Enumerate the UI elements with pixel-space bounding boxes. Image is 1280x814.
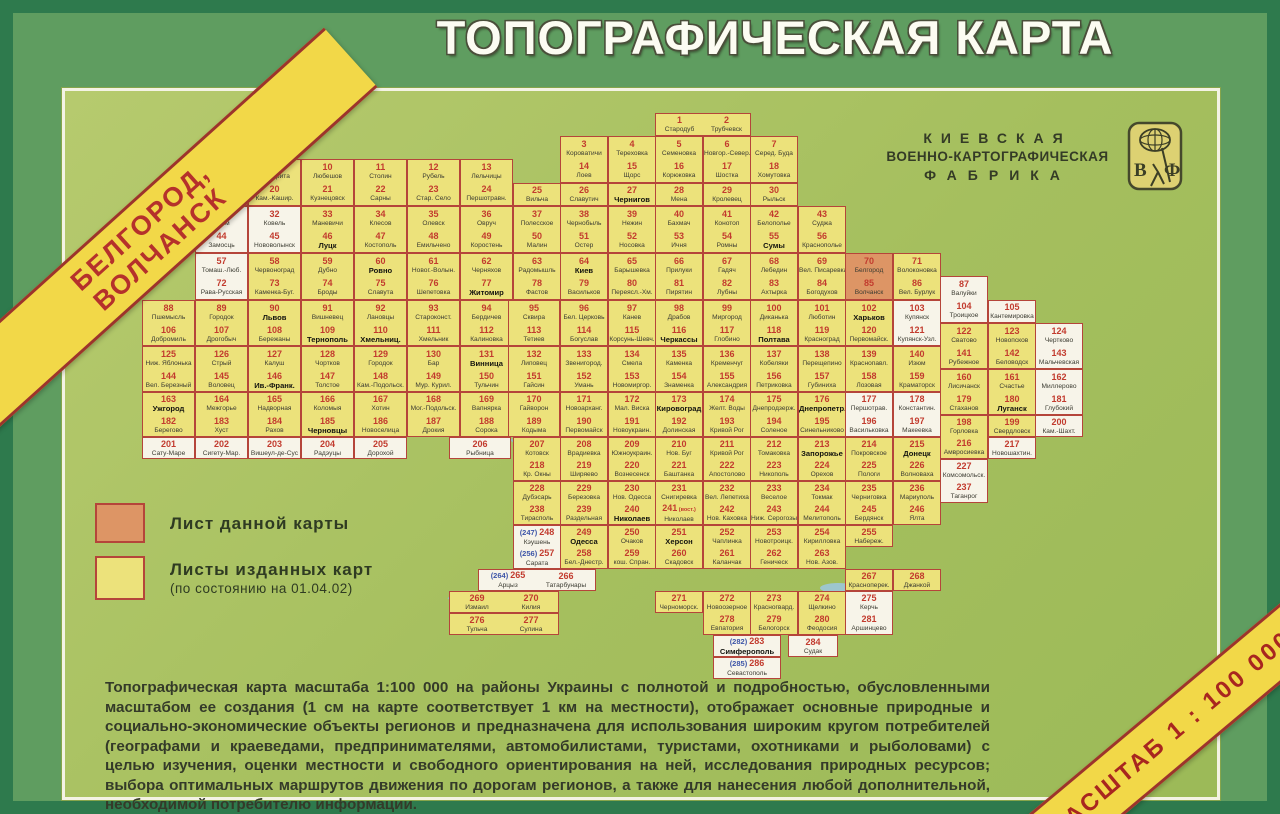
svg-text:Ф: Ф <box>1164 160 1180 181</box>
page-title: ТОПОГРАФИЧЕСКАЯ КАРТА <box>330 10 1220 65</box>
publisher-line1: КИЕВСКАЯ <box>880 130 1115 146</box>
legend-label-published-sheets: Листы изданных карт <box>170 560 373 580</box>
publisher-block: КИЕВСКАЯ ВОЕННО-КАРТОГРАФИЧЕСКАЯ ФАБРИКА <box>880 130 1115 183</box>
publisher-line2: ВОЕННО-КАРТОГРАФИЧЕСКАЯ <box>880 149 1115 164</box>
svg-text:В: В <box>1134 160 1147 181</box>
map-cover: { "title": "ТОПОГРАФИЧЕСКАЯ КАРТА", "rib… <box>0 0 1280 814</box>
legend-label-current-sheet: Лист данной карты <box>170 514 349 534</box>
legend-swatch-published-sheets <box>95 556 145 600</box>
legend-swatch-current-sheet <box>95 503 145 543</box>
publisher-line3: ФАБРИКА <box>880 167 1115 183</box>
legend-note-published-date: (по состоянию на 01.04.02) <box>170 581 353 596</box>
map-description: Топографическая карта масштаба 1:100 000… <box>105 678 990 814</box>
globe-vkf-logo-icon: В Ф <box>1126 120 1184 192</box>
